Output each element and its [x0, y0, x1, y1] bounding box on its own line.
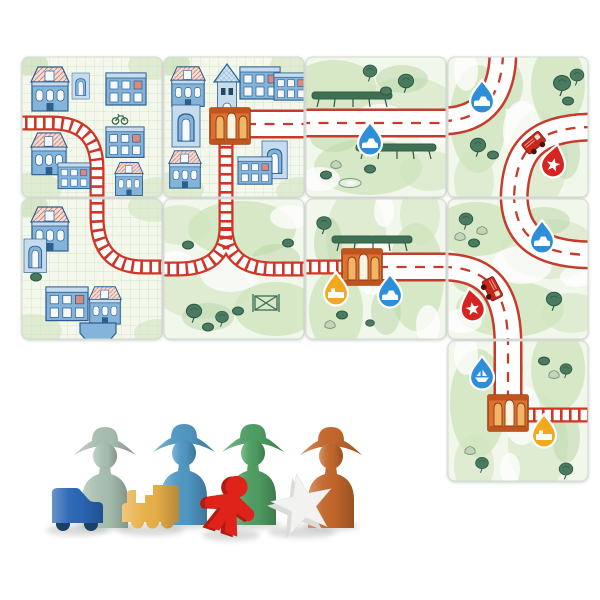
house-icon [24, 239, 46, 273]
bush-icon [488, 151, 499, 159]
bush-icon [337, 311, 348, 319]
bush-icon [283, 239, 294, 247]
station-building-icon [488, 395, 528, 431]
house-icon [89, 287, 121, 324]
house-icon [106, 127, 144, 157]
bush-icon [469, 239, 480, 247]
house-icon [46, 287, 88, 321]
tile-meadow-station-2[interactable] [448, 327, 594, 495]
house-icon [106, 73, 146, 105]
bush-icon [366, 320, 375, 326]
tile-city-rail-curve[interactable] [2, 50, 182, 206]
bush-icon [365, 165, 376, 173]
bush-icon [539, 357, 550, 365]
pond-icon [339, 179, 361, 188]
tile-meadow-rail-junction[interactable] [150, 193, 318, 339]
house-icon [115, 163, 144, 196]
rock-icon [325, 321, 335, 329]
house-icon [58, 163, 90, 189]
token-train[interactable] [122, 485, 179, 529]
bush-icon [183, 241, 194, 249]
tile-meadow-straight-road[interactable] [292, 57, 460, 197]
bush-icon [321, 171, 332, 179]
house-icon [238, 157, 272, 184]
dock-icon [80, 323, 116, 341]
board-and-pieces [0, 0, 600, 600]
house-icon [169, 151, 201, 188]
station-building-icon [210, 108, 250, 144]
station-building-icon [342, 249, 382, 285]
bush-icon [203, 323, 214, 331]
tile-city-rail-curve-2[interactable] [2, 192, 182, 348]
game-scene [0, 0, 600, 600]
bush-icon [233, 307, 244, 315]
house-icon [171, 67, 205, 107]
house-icon [31, 67, 69, 111]
rock-icon [331, 161, 341, 169]
rock-icon [455, 233, 465, 241]
rock-icon [465, 447, 475, 455]
rock-icon [477, 227, 487, 235]
bush-icon [381, 87, 392, 95]
house-icon [172, 105, 200, 147]
tile-meadow-station[interactable] [300, 185, 452, 353]
tile-city-station[interactable] [144, 50, 324, 206]
bush-icon [563, 97, 574, 105]
tile-meadow-two-road-curves[interactable] [442, 43, 594, 211]
train-shading [122, 485, 179, 529]
house-icon [72, 73, 89, 99]
wooden-pieces [46, 424, 362, 541]
rock-icon [549, 371, 559, 379]
tile-meadow-two-road-curves-2[interactable] [434, 193, 600, 345]
tile-grid [2, 43, 600, 495]
bush-icon [31, 273, 42, 281]
house-icon [274, 73, 308, 100]
